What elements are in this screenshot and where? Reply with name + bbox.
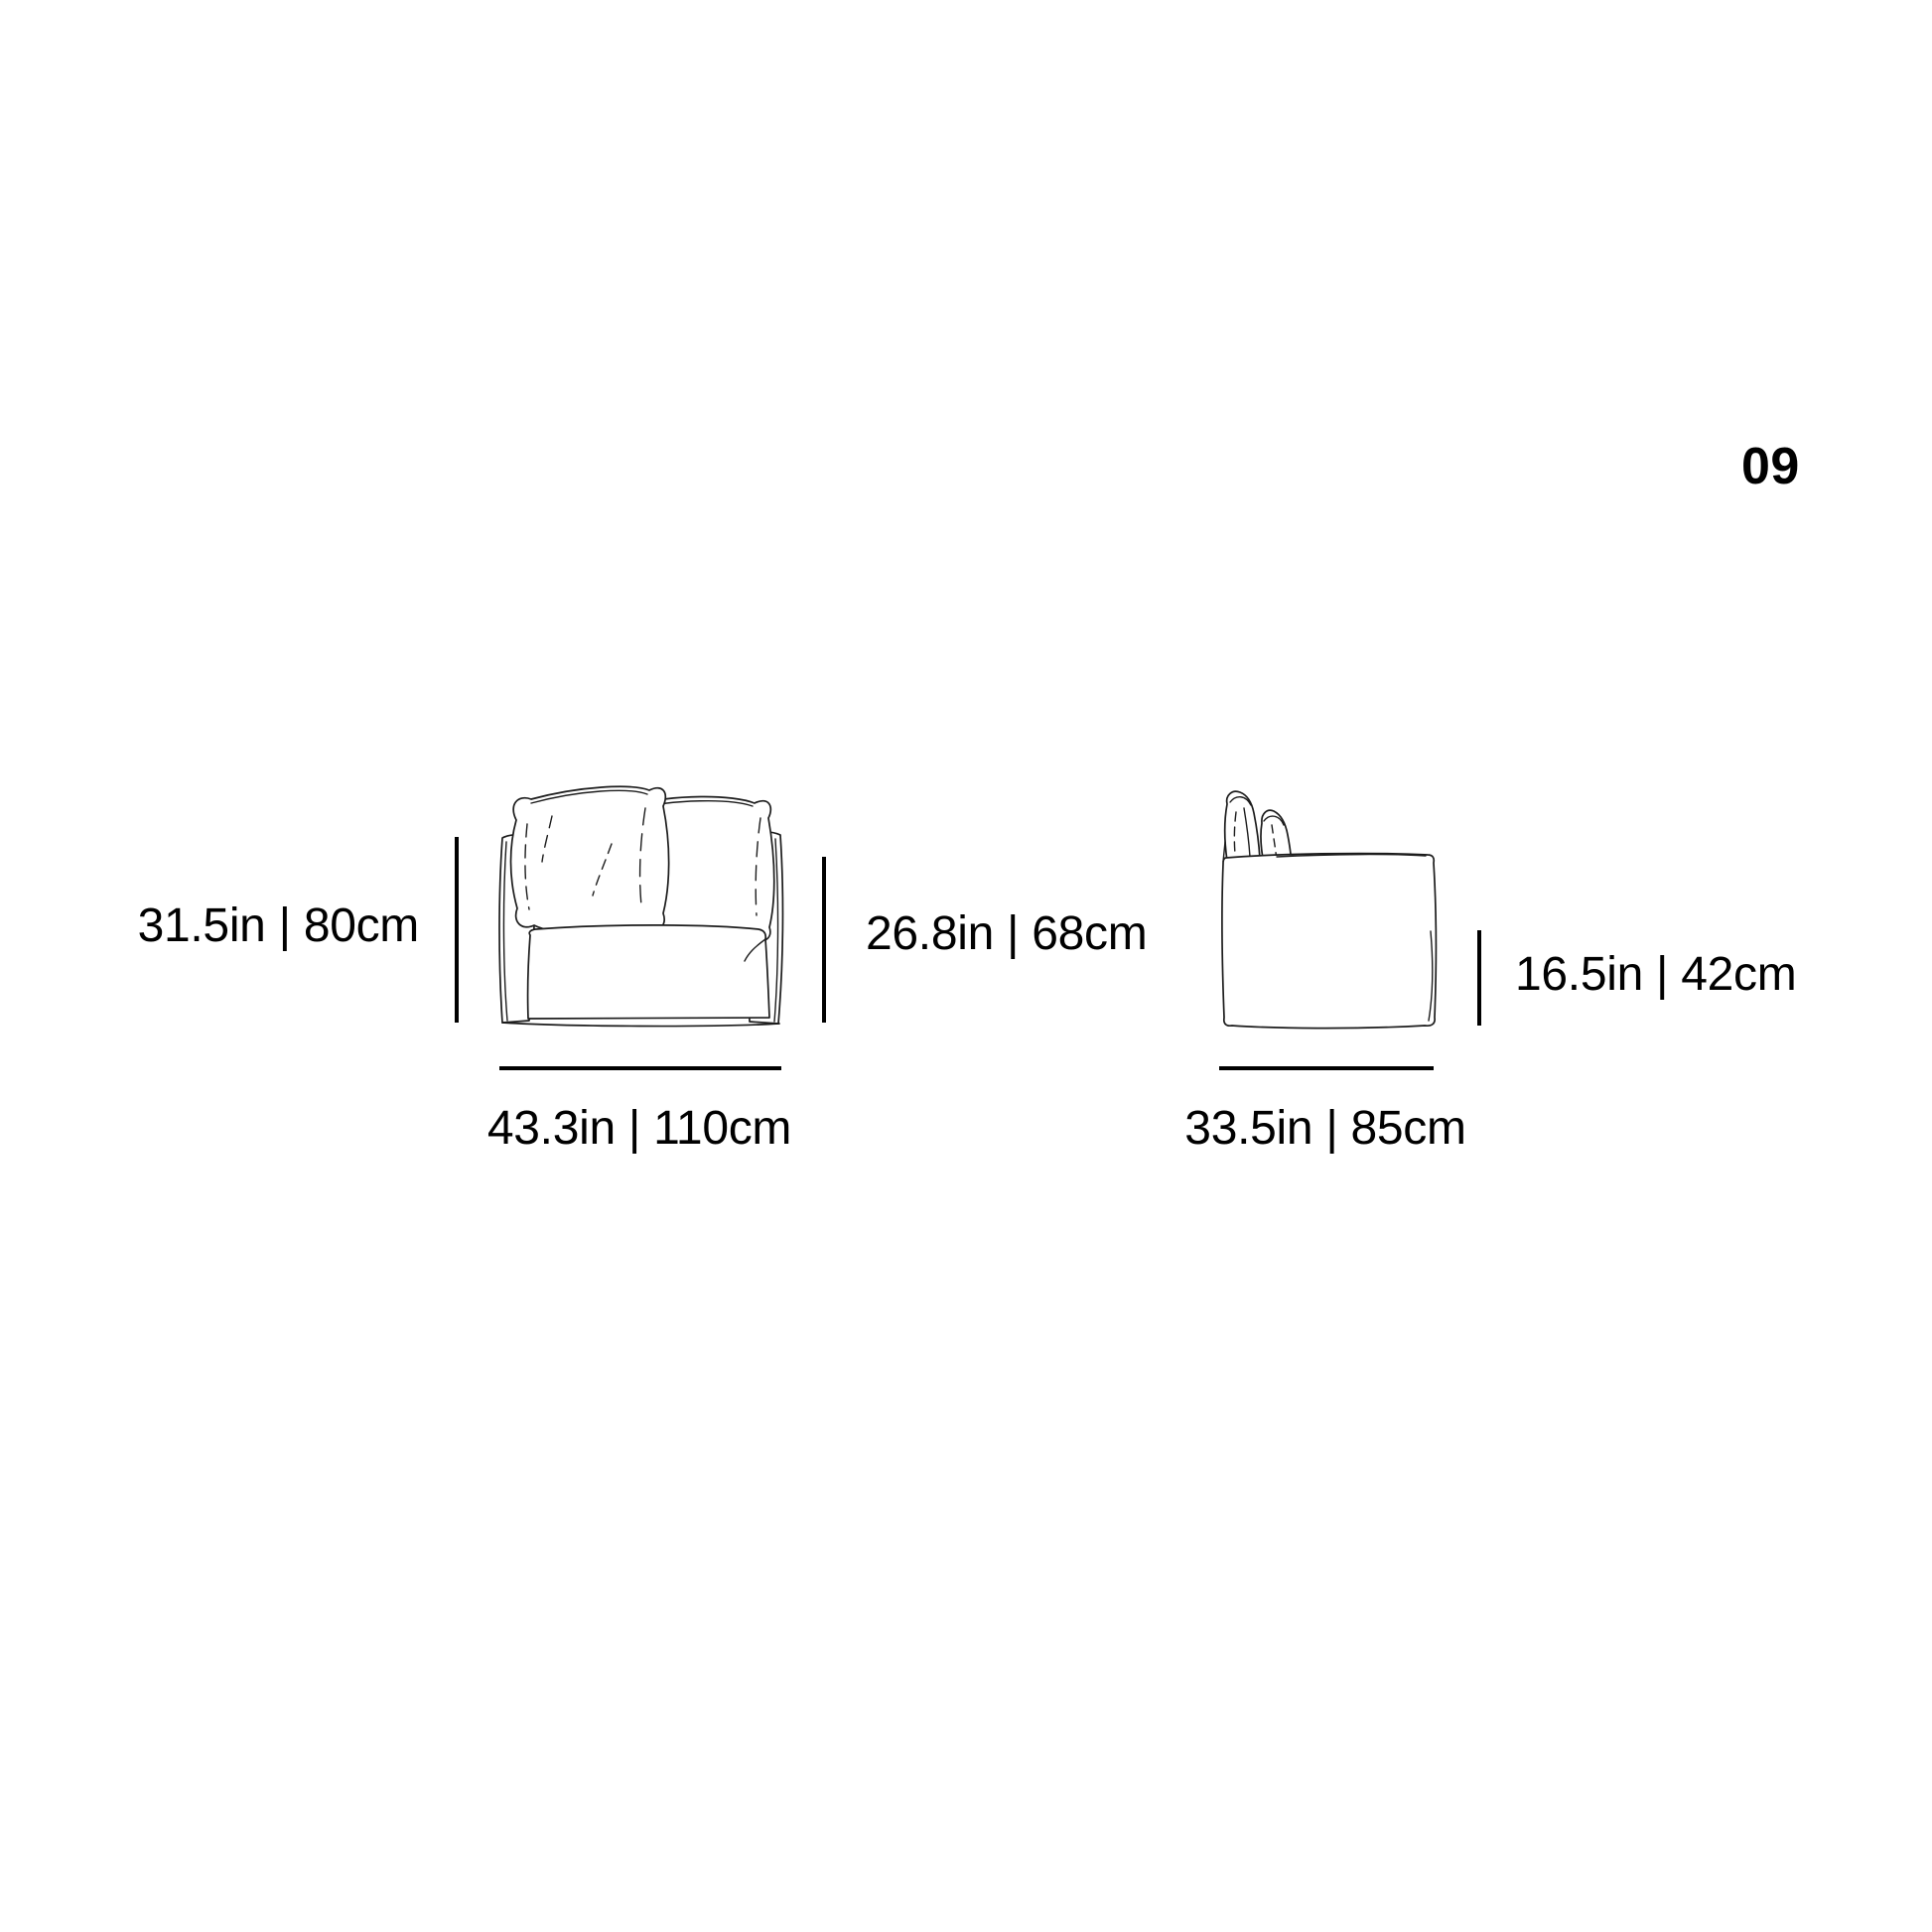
armchair-front-view-drawing: [494, 782, 788, 1033]
page-number: 09: [1741, 441, 1800, 492]
armchair-side-view-drawing: [1215, 782, 1442, 1033]
front-back-height-dimension-line: [822, 857, 826, 1023]
front-width-label: 43.3in | 110cm: [441, 1105, 838, 1153]
front-back-height-label: 26.8in | 68cm: [866, 910, 1147, 958]
side-seat-height-label: 16.5in | 42cm: [1515, 951, 1796, 999]
front-overall-height-label: 31.5in | 80cm: [99, 902, 419, 950]
side-depth-label: 33.5in | 85cm: [1127, 1105, 1524, 1153]
front-width-dimension-line: [499, 1066, 781, 1070]
front-height-dimension-line: [455, 837, 459, 1023]
side-depth-dimension-line: [1219, 1066, 1434, 1070]
side-seat-height-dimension-line: [1477, 930, 1481, 1026]
dimension-spec-sheet: { "page": { "number": "09" }, "style": {…: [0, 0, 1932, 1932]
